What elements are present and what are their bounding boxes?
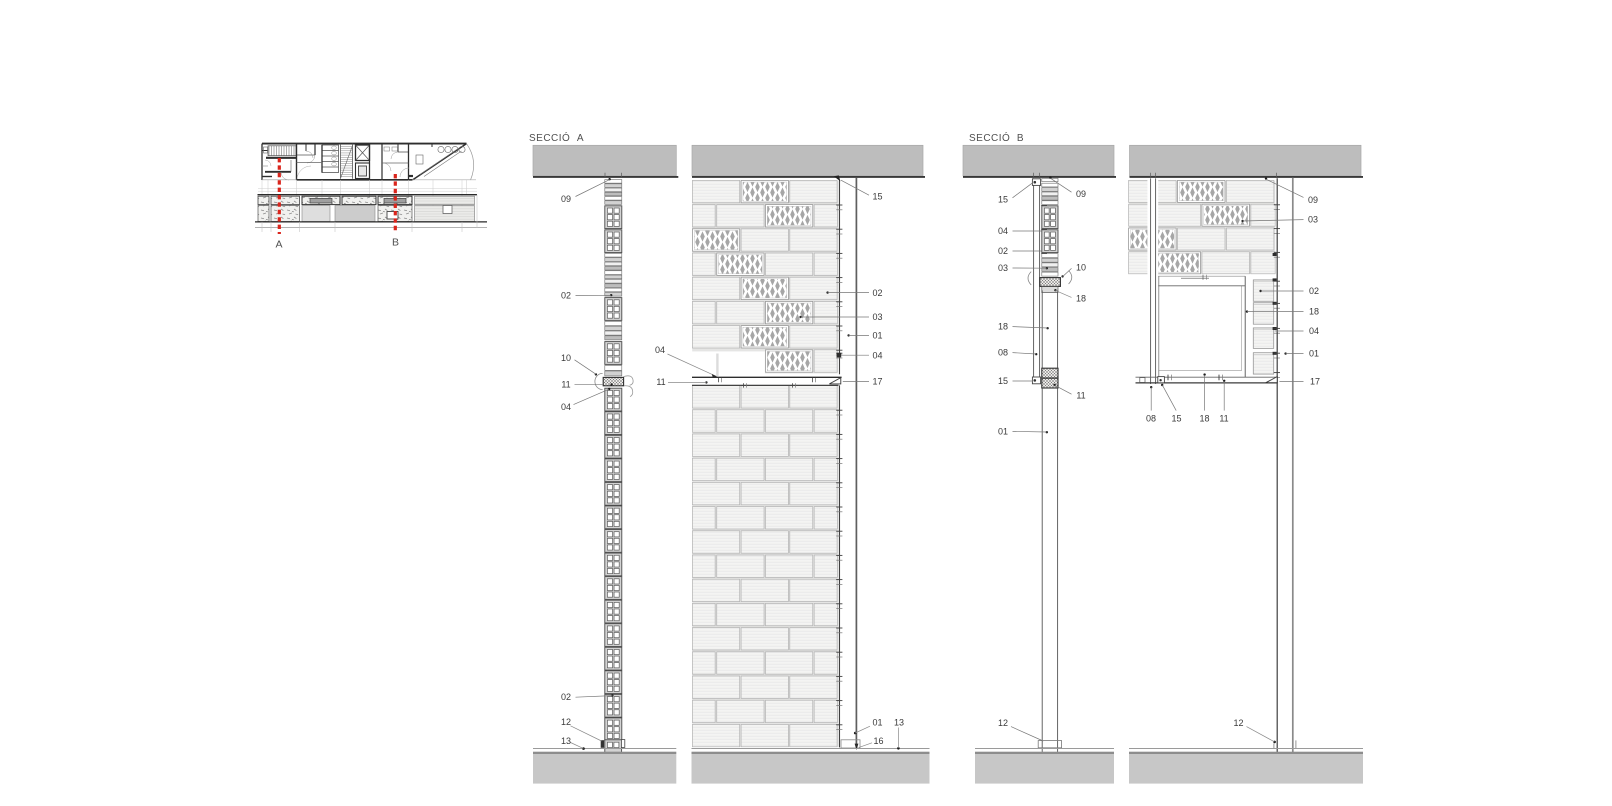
svg-text:11: 11: [1076, 390, 1085, 400]
svg-text:09: 09: [1076, 189, 1086, 199]
svg-text:09: 09: [561, 194, 571, 204]
svg-text:03: 03: [1308, 215, 1318, 225]
svg-text:SECCIÓ A: SECCIÓ A: [529, 131, 584, 144]
svg-text:04: 04: [1309, 326, 1319, 336]
svg-text:12: 12: [561, 717, 571, 727]
svg-text:18: 18: [1309, 307, 1319, 317]
svg-text:17: 17: [1310, 377, 1320, 387]
svg-text:15: 15: [872, 192, 882, 202]
svg-text:13: 13: [894, 718, 904, 728]
svg-text:10: 10: [1076, 263, 1086, 273]
svg-text:03: 03: [998, 263, 1008, 273]
svg-text:12: 12: [1233, 718, 1243, 728]
svg-text:11: 11: [656, 377, 665, 387]
svg-text:15: 15: [1171, 413, 1181, 423]
svg-text:04: 04: [872, 350, 882, 360]
svg-text:08: 08: [1146, 413, 1156, 423]
svg-text:04: 04: [655, 345, 665, 355]
svg-text:09: 09: [1308, 195, 1318, 205]
svg-text:13: 13: [561, 736, 571, 746]
svg-text:03: 03: [872, 312, 882, 322]
svg-text:16: 16: [873, 736, 883, 746]
svg-text:01: 01: [1309, 349, 1319, 359]
svg-text:15: 15: [998, 376, 1008, 386]
svg-text:04: 04: [998, 226, 1008, 236]
svg-text:01: 01: [998, 426, 1008, 436]
svg-text:B: B: [392, 237, 399, 249]
svg-text:02: 02: [998, 246, 1008, 256]
svg-text:11: 11: [561, 379, 570, 389]
svg-text:SECCIÓ B: SECCIÓ B: [969, 131, 1024, 144]
svg-text:15: 15: [998, 195, 1008, 205]
svg-text:12: 12: [998, 718, 1008, 728]
svg-text:02: 02: [1309, 286, 1319, 296]
svg-text:18: 18: [1199, 413, 1209, 423]
svg-text:01: 01: [872, 331, 882, 341]
svg-text:18: 18: [998, 322, 1008, 332]
svg-text:10: 10: [561, 353, 571, 363]
svg-text:04: 04: [561, 402, 571, 412]
svg-text:02: 02: [561, 290, 571, 300]
svg-text:01: 01: [872, 718, 882, 728]
svg-text:08: 08: [998, 348, 1008, 358]
svg-text:02: 02: [561, 692, 571, 702]
svg-text:A: A: [275, 239, 282, 251]
svg-text:18: 18: [1076, 293, 1086, 303]
svg-text:11: 11: [1219, 413, 1228, 423]
svg-text:17: 17: [872, 377, 882, 387]
svg-text:02: 02: [872, 288, 882, 298]
